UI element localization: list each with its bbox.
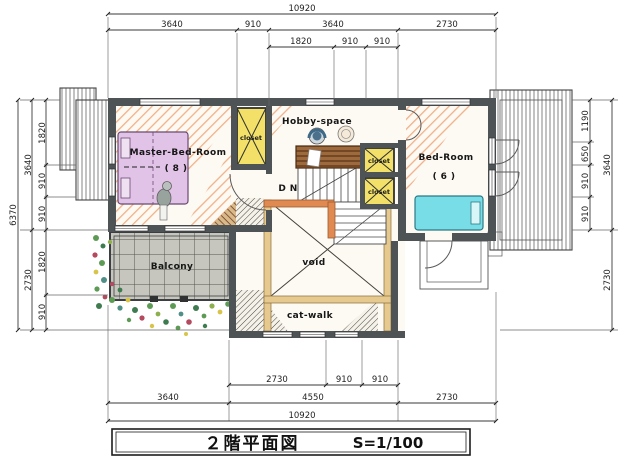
bedroom-label: Bed-Room [418,153,473,163]
dim-top-3: 3640 [322,20,344,30]
balcony-post [180,296,188,302]
master-bedroom-label: Master-Bed-Room [130,148,227,158]
dim-top-4: 2730 [436,20,458,30]
dim-left-inner-1: 1820 [38,122,48,144]
dim-top-5: 1820 [290,37,312,47]
balcony-post [150,296,158,302]
void-label: void [302,258,325,268]
master-bedroom-size: ( 8 ) [165,164,188,174]
closet-lower-label: closet [368,188,390,196]
roof-hatch-patch [236,290,264,331]
dim-top-1: 3640 [161,20,183,30]
dim-right-outer-2: 2730 [603,269,613,291]
dim-top-total: 10920 [288,4,315,14]
stairs-down-label: D N [278,184,297,194]
hobby-space-label: Hobby-space [282,117,352,127]
dim-right-inner-1: 1190 [581,110,591,132]
bedroom-size: ( 6 ) [433,172,456,182]
floor-plan-page: Master-Bed-Room ( 8 ) Hobby-space Bed-Ro… [0,0,640,459]
title-block: ２階平面図 S=1/100 [112,429,470,455]
dim-bottom-6: 2730 [436,393,458,403]
dim-right-inner-2: 650 [581,146,591,162]
pillow [471,202,480,224]
dim-left-total: 6370 [9,204,19,226]
dim-left-inner-2: 910 [38,173,48,189]
dim-bottom-3: 910 [372,375,388,385]
pillow [121,178,130,198]
dim-left-inner-4: 1820 [38,251,48,273]
dim-right-inner-3: 910 [581,173,591,189]
dim-right-inner-4: 910 [581,206,591,222]
bedroom-bed [415,196,483,230]
dim-bottom-4: 3640 [157,393,179,403]
roof-area-left [60,88,112,200]
paper [307,149,321,167]
dim-top-6: 910 [342,37,358,47]
dim-top-2: 910 [245,20,261,30]
dim-left-inner-3: 910 [38,206,48,222]
closet-master-label: closet [240,134,262,142]
drawing-title: ２階平面図 [205,434,300,454]
dim-bottom-1: 2730 [266,375,288,385]
dim-right-outer-1: 3640 [603,154,613,176]
dim-top-7: 910 [374,37,390,47]
dim-bottom-5: 4550 [302,393,324,403]
top-dimensions: 10920 3640 910 3640 2730 1820 910 910 [106,4,498,106]
desk [296,146,362,168]
chair [338,126,354,142]
dim-left-outer-2: 2730 [24,269,34,291]
drawing-scale: S=1/100 [353,434,424,452]
dim-bottom-total: 10920 [288,411,315,421]
dim-bottom-2: 910 [336,375,352,385]
balcony-label: Balcony [151,262,194,272]
roof-area-right [490,90,572,250]
dim-left-outer-1: 3640 [24,154,34,176]
closet-upper-label: closet [368,157,390,165]
floor-plan-drawing: Master-Bed-Room ( 8 ) Hobby-space Bed-Ro… [0,0,640,459]
catwalk-label: cat-walk [287,311,334,321]
dim-left-inner-5: 910 [38,304,48,320]
